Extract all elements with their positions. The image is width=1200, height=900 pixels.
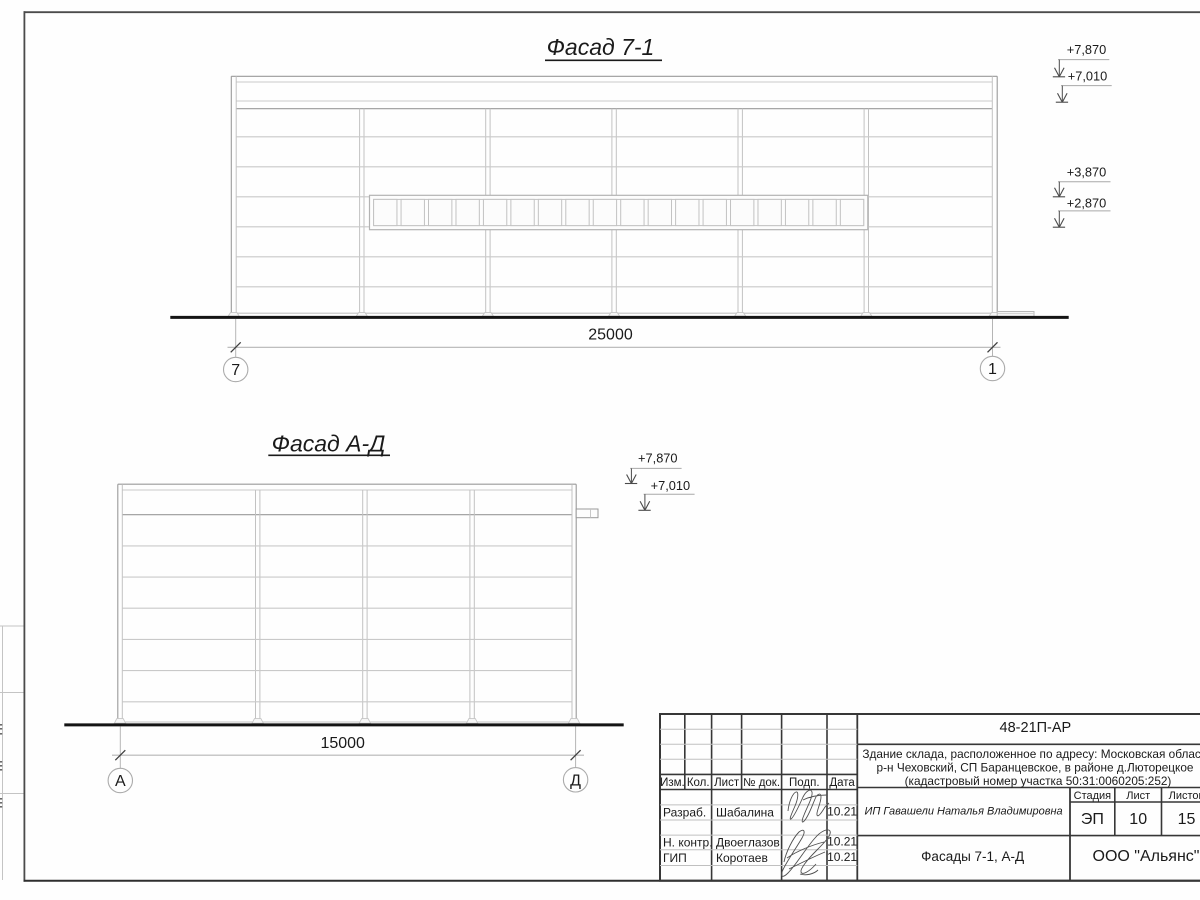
svg-text:Лист: Лист: [714, 777, 740, 789]
svg-text:р-н Чеховский, СП Баранцевское: р-н Чеховский, СП Баранцевское, в районе…: [877, 761, 1194, 775]
svg-text:Лист: Лист: [1126, 790, 1150, 802]
svg-text:Разраб.: Разраб.: [663, 806, 706, 820]
svg-text:Н. контр.: Н. контр.: [663, 836, 713, 850]
svg-text:Здание склада, расположенное п: Здание склада, расположенное по адресу: …: [862, 747, 1200, 761]
svg-text:15000: 15000: [320, 735, 365, 752]
svg-text:1: 1: [988, 361, 997, 378]
svg-text:Шабалина: Шабалина: [716, 806, 774, 820]
svg-text:10.21: 10.21: [827, 805, 857, 819]
svg-text:ГИП: ГИП: [663, 851, 687, 865]
svg-text:25000: 25000: [588, 327, 633, 344]
svg-text:10.21: 10.21: [827, 850, 857, 864]
svg-text:ООО "Альянс": ООО "Альянс": [1093, 848, 1200, 865]
svg-text:№ док.: № док.: [743, 777, 780, 789]
svg-text:10.21: 10.21: [827, 835, 857, 849]
svg-text:Фасад А-Д: Фасад А-Д: [272, 431, 386, 457]
svg-text:Д: Д: [570, 772, 581, 789]
svg-text:(кадастровый номер участка 50:: (кадастровый номер участка 50:31:0060205…: [905, 774, 1172, 788]
svg-text:+7,870: +7,870: [1067, 42, 1107, 57]
svg-text:Кол.: Кол.: [687, 777, 710, 789]
svg-text:ИП Гавашели Наталья Владимиров: ИП Гавашели Наталья Владимировна: [864, 806, 1062, 818]
svg-text:10: 10: [1129, 811, 1147, 828]
svg-text:15: 15: [1178, 811, 1196, 828]
svg-text:Фасады 7-1, А-Д: Фасады 7-1, А-Д: [921, 849, 1024, 864]
svg-text:Коротаев: Коротаев: [716, 851, 768, 865]
svg-text:+7,010: +7,010: [651, 478, 691, 493]
svg-text:Изм.: Изм.: [660, 777, 685, 789]
svg-text:+2,870: +2,870: [1067, 196, 1107, 211]
svg-text:ЭП: ЭП: [1081, 811, 1104, 828]
svg-text:7: 7: [231, 362, 240, 379]
svg-text:+7,870: +7,870: [638, 451, 678, 466]
svg-text:А: А: [115, 773, 126, 790]
svg-text:Фасад 7-1: Фасад 7-1: [547, 34, 655, 60]
svg-text:+3,870: +3,870: [1067, 164, 1107, 179]
svg-text:Листов: Листов: [1169, 790, 1200, 802]
svg-text:Стадия: Стадия: [1074, 790, 1112, 802]
svg-text:Двоеглазов: Двоеглазов: [716, 836, 780, 850]
svg-text:Дата: Дата: [829, 777, 855, 789]
svg-text:Подп.: Подп.: [789, 777, 820, 789]
svg-text:48-21П-АР: 48-21П-АР: [1000, 720, 1072, 736]
svg-text:+7,010: +7,010: [1068, 69, 1108, 84]
